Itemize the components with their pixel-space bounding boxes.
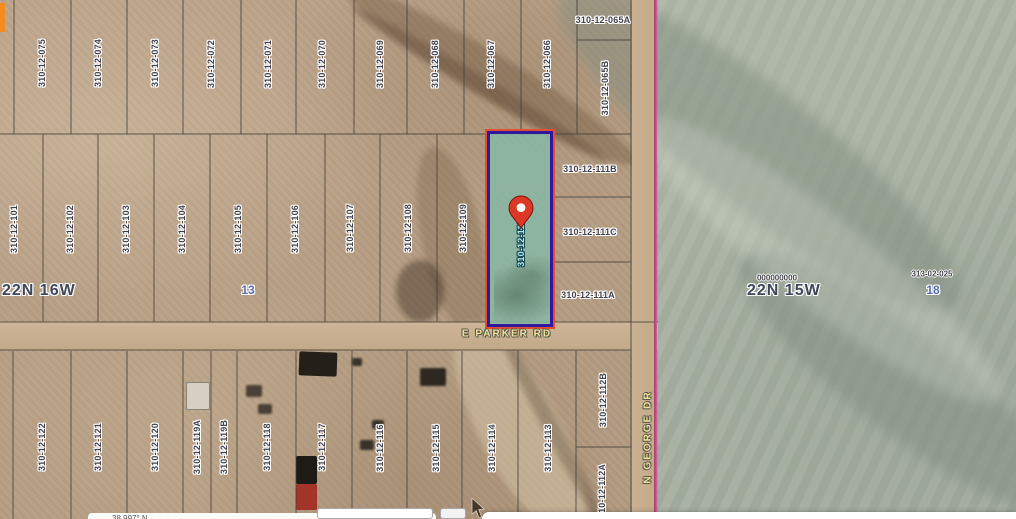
parcel-label: 310-12-119B bbox=[219, 420, 229, 474]
section-number-west: 13 bbox=[241, 283, 254, 297]
parcel-label: 310-12-107 bbox=[345, 204, 355, 252]
parcel-label: 310-12-106 bbox=[290, 205, 300, 253]
unassigned-parcel-label: 000000000 bbox=[757, 274, 797, 283]
parcel-label: 310-12-065B bbox=[600, 61, 610, 116]
parcel-map-viewer: 310-12-075 310-12-074 310-12-073 310-12-… bbox=[0, 0, 1016, 519]
parcel-label: 310-12-101 bbox=[9, 205, 19, 253]
parcel-label: 310-12-070 bbox=[317, 40, 327, 88]
section-number-east: 18 bbox=[926, 283, 939, 297]
parcel-label: 310-12-116 bbox=[375, 424, 385, 472]
parcel-label: 310-12-121 bbox=[93, 423, 103, 471]
section-boundary-line bbox=[654, 0, 657, 519]
parcel-label: 310-12-072 bbox=[206, 40, 216, 88]
parcel-label: 310-12-075 bbox=[37, 39, 47, 87]
coordinate-readout: 38.997° N bbox=[112, 514, 148, 519]
parcel-label: 313-02-025 bbox=[912, 270, 953, 279]
parcel-label: 310-12-102 bbox=[65, 205, 75, 253]
search-button[interactable] bbox=[440, 508, 466, 519]
orange-edge-marker bbox=[0, 3, 5, 32]
parcel-label: 310-12-111B bbox=[563, 164, 617, 174]
parcel-label: 310-12-103 bbox=[121, 205, 131, 253]
search-input[interactable] bbox=[317, 508, 433, 519]
parcel-label: 310-12-071 bbox=[263, 40, 273, 88]
parcel-label: 310-12-118 bbox=[262, 423, 272, 471]
parcel-label: 310-12-073 bbox=[150, 39, 160, 87]
parcel-label: 310-12-113 bbox=[543, 424, 553, 472]
parcel-label: 310-12-122 bbox=[37, 423, 47, 471]
mouse-cursor-icon bbox=[470, 498, 486, 519]
township-label-west: 22N 16W bbox=[2, 282, 76, 300]
road-label-e-parker: E PARKER RD bbox=[462, 329, 552, 340]
parcel-label: 310-12-069 bbox=[375, 40, 385, 88]
location-pin-icon[interactable] bbox=[508, 195, 534, 229]
road-label-n-george: N GEORGE DR bbox=[643, 390, 654, 483]
parcel-label: 310-12-111C bbox=[563, 227, 617, 237]
parcel-label: 310-12-066 bbox=[542, 40, 552, 88]
parcel-label: 310-12-117 bbox=[317, 423, 327, 471]
parcel-label: 310-12-074 bbox=[93, 39, 103, 87]
parcel-label: 310-12-119A bbox=[192, 420, 202, 474]
parcel-label: 310-12-105 bbox=[233, 205, 243, 253]
parcel-label: 310-12-114 bbox=[487, 424, 497, 472]
parcel-label: 310-12-120 bbox=[150, 423, 160, 471]
parcel-label: 310-12-109 bbox=[458, 204, 468, 252]
parcel-label: 310-12-115 bbox=[431, 424, 441, 472]
parcel-label: 310-12-067 bbox=[486, 40, 496, 88]
parcel-label: 310-12-111A bbox=[561, 290, 615, 300]
township-label-east: 22N 15W bbox=[747, 282, 821, 300]
parcel-label: 310-12-104 bbox=[177, 205, 187, 253]
parcel-label: 310-12-065A bbox=[576, 15, 631, 25]
bottom-popup-panel[interactable] bbox=[482, 512, 1016, 519]
parcel-label: 310-12-108 bbox=[403, 204, 413, 252]
parcel-label: 310-12-112A bbox=[597, 464, 607, 518]
parcel-label: 310-12-112B bbox=[598, 373, 608, 427]
parcel-label: 310-12-068 bbox=[430, 40, 440, 88]
